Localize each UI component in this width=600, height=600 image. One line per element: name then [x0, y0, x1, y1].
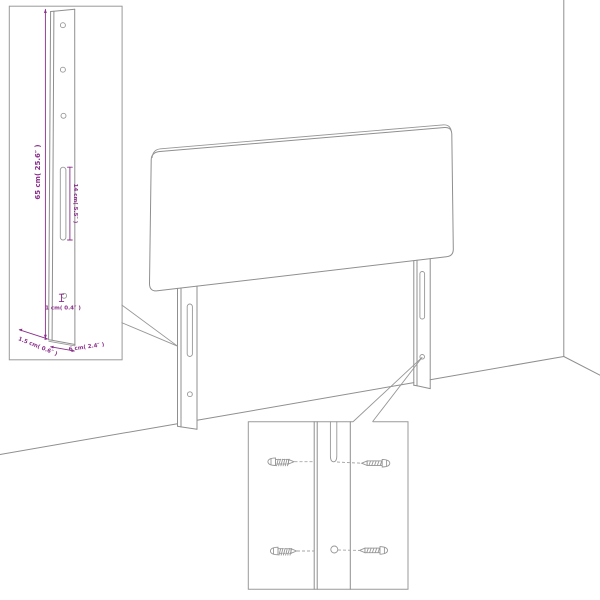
leg-left-slot — [187, 304, 192, 357]
screw-top-icon — [362, 459, 390, 467]
hidden-screw-bottom-tip — [291, 549, 297, 554]
floor-line-left — [0, 424, 178, 455]
inset-strip-hole — [331, 546, 338, 553]
leader-screw-top — [337, 462, 361, 463]
leg-left-hole — [188, 392, 193, 397]
inset-leader-lines — [295, 462, 362, 551]
detail-inset-screws — [248, 422, 408, 590]
headboard-panel — [150, 127, 454, 290]
callout-lines-bottom-inset — [353, 358, 422, 422]
callout-line-left-1 — [122, 305, 178, 346]
hidden-screw-top-icon — [268, 458, 294, 466]
screw-top-tip — [362, 461, 368, 466]
dimension-width-label: 6 cm( 2.4″ ) — [68, 342, 105, 353]
product-assembly-diagram: 65 cm( 25.6″ ) 14 cm( 5.5″ ) 1 cm( 0.4″ … — [0, 0, 600, 600]
dimension-slot: 14 cm( 5.5″ ) — [68, 167, 78, 240]
diagram-canvas: 65 cm( 25.6″ ) 14 cm( 5.5″ ) 1 cm( 0.4″ … — [0, 0, 600, 600]
dimension-hole-label: 1 cm( 0.4″ ) — [45, 306, 81, 312]
inset-leg-hole-2 — [60, 67, 65, 72]
hidden-screw-top-threads — [277, 459, 290, 466]
hidden-screw-bottom-threads — [279, 549, 292, 556]
floor-line-corner-right — [564, 357, 600, 376]
leg-left-bottom-edge — [178, 426, 198, 429]
inset-leg-hole-3 — [61, 113, 66, 118]
screw-top-head — [382, 459, 390, 467]
leg-right-slot — [420, 272, 425, 320]
hidden-screw-top-tip — [289, 459, 295, 464]
leg-right-bottom-edge — [414, 385, 430, 388]
callout-line-right-1 — [353, 358, 422, 422]
hidden-screw-bottom-icon — [270, 547, 296, 555]
screw-bottom-icon — [360, 547, 388, 555]
headboard-leg-left — [178, 286, 198, 429]
screw-bottom-tip — [360, 548, 366, 553]
inset-leg-front-left-edge — [52, 11, 54, 340]
floor-line-right — [430, 357, 564, 380]
floor-line-middle — [197, 383, 414, 421]
dimension-slot-label: 14 cm( 5.5″ ) — [72, 184, 78, 224]
detail-inset-leg: 65 cm( 25.6″ ) 14 cm( 5.5″ ) 1 cm( 0.4″ … — [9, 6, 122, 360]
inset-leg-side-left-edge — [49, 12, 51, 340]
dimension-hole: 1 cm( 0.4″ ) — [45, 294, 81, 311]
screw-bottom-head — [380, 547, 388, 555]
callout-line-left-2 — [122, 323, 178, 347]
inset-leg-hole-1 — [60, 23, 65, 28]
inset-strip — [314, 422, 350, 590]
callout-lines-left-inset — [122, 305, 178, 346]
inset-leg-slot — [60, 167, 66, 240]
dimension-height-arrow-top — [44, 9, 47, 13]
dimension-height: 65 cm( 25.6″ ) — [34, 9, 47, 340]
callout-line-right-2 — [373, 358, 422, 422]
inset-strip-slot — [330, 422, 336, 462]
dimension-height-label: 65 cm( 25.6″ ) — [34, 144, 42, 199]
headboard-leg-right — [414, 259, 430, 389]
hidden-screw-bottom-head — [270, 547, 278, 555]
inset-bottom-frame — [248, 422, 408, 590]
hidden-screw-top-head — [268, 458, 276, 466]
